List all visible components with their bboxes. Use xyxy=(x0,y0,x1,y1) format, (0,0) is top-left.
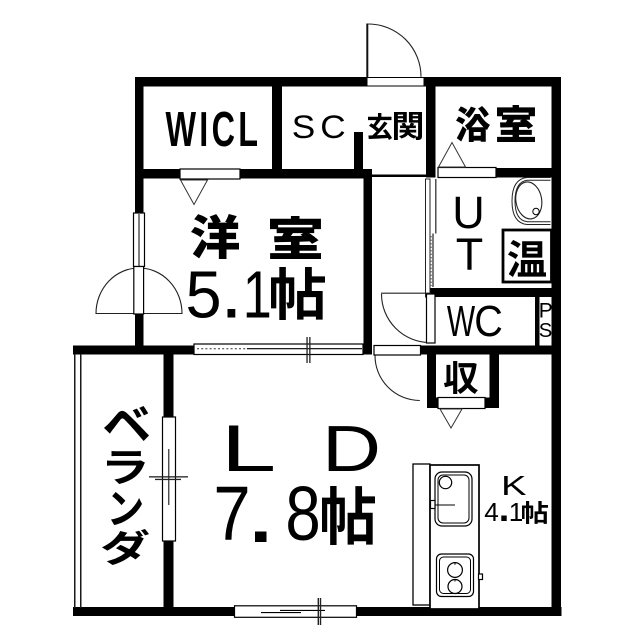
svg-text:4: 4 xyxy=(484,497,499,527)
svg-text:7: 7 xyxy=(213,472,250,557)
svg-text:1: 1 xyxy=(509,497,524,527)
svg-text:W: W xyxy=(447,296,476,345)
svg-text:1: 1 xyxy=(243,257,272,332)
svg-text:D: D xyxy=(322,412,381,485)
svg-text:8: 8 xyxy=(285,470,320,556)
svg-text:WICL: WICL xyxy=(166,101,262,157)
svg-text:C: C xyxy=(474,296,503,345)
svg-text:S: S xyxy=(539,320,553,342)
svg-text:5: 5 xyxy=(185,257,221,332)
svg-text:S: S xyxy=(292,110,315,145)
svg-text:T: T xyxy=(456,229,484,280)
svg-text:C: C xyxy=(320,110,345,145)
